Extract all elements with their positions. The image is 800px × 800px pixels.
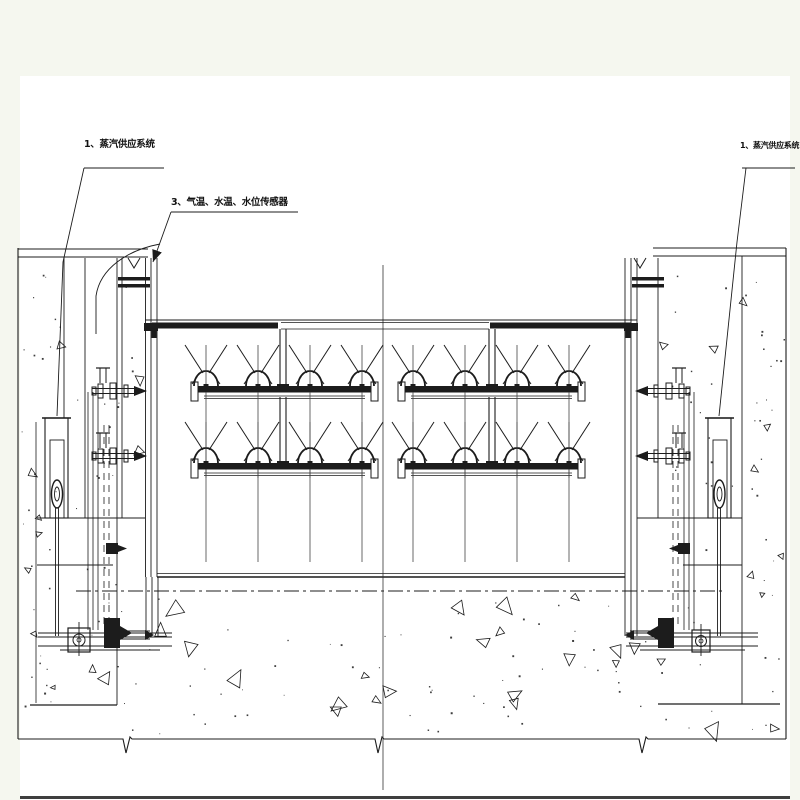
annotation-steam-supply-right: 1、蒸汽供应系统 bbox=[740, 142, 799, 150]
drawing-sheet: 1、蒸汽供应系统 3、气温、水温、水位传感器 1、蒸汽供应系统 bbox=[0, 0, 800, 800]
paper bbox=[20, 76, 790, 800]
annotation-steam-supply-left: 1、蒸汽供应系统 bbox=[84, 140, 155, 150]
section-drawing bbox=[0, 0, 800, 800]
annotation-sensors: 3、气温、水温、水位传感器 bbox=[171, 198, 288, 208]
